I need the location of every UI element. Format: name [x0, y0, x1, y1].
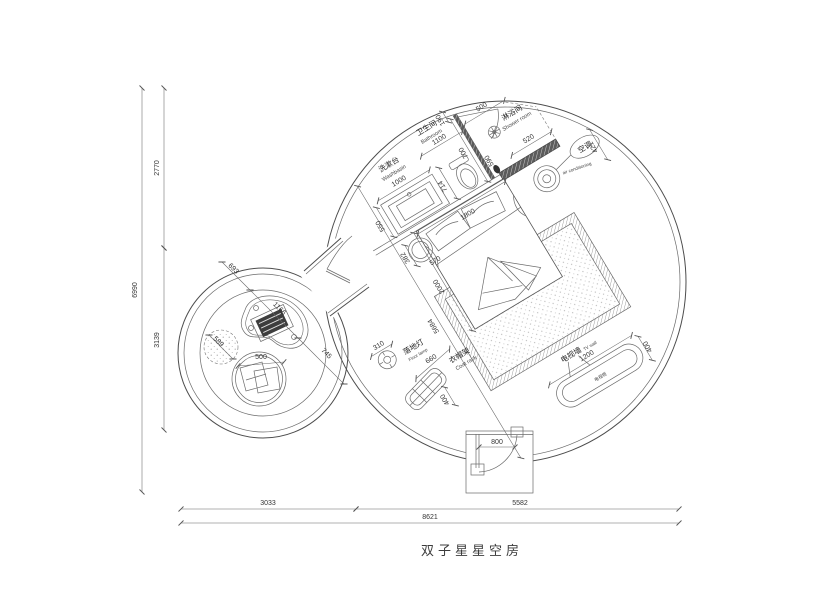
dim-total-width: 8621 — [422, 514, 438, 521]
dim-table-to-door: 745 — [319, 347, 332, 360]
entry-vestibule: 800 — [466, 427, 533, 493]
dim-bed-length: 2000 — [432, 278, 446, 295]
tv-cabinet-label: 电视柜 — [593, 370, 609, 383]
dim-bench-length: 520 — [522, 133, 536, 145]
floor-lamp — [375, 347, 400, 372]
dim-tv-depth: 400 — [642, 340, 654, 354]
dim-entry-door-width: 800 — [491, 439, 503, 446]
dim-toilet-offset: 714 — [437, 179, 449, 193]
dim-left-width: 3033 — [260, 500, 276, 507]
floor-drain-icon — [486, 124, 502, 140]
dim-rack-depth: 400 — [439, 393, 451, 407]
floor-plan-sheet: 6990 2770 3139 3033 5582 8621 — [0, 0, 837, 592]
coat-rack — [403, 366, 449, 413]
dim-wall-to-table: 693 — [226, 262, 239, 275]
dim-counter-depth: 550 — [375, 219, 387, 233]
floor-plan-drawing: 6990 2770 3139 3033 5582 8621 — [0, 0, 837, 592]
dim-upper-height: 2770 — [154, 160, 161, 176]
shower-wall-segment — [499, 139, 560, 180]
dim-stool-offset: 382 — [400, 251, 412, 265]
dim-lamp-diameter: 310 — [372, 340, 386, 352]
corridor — [300, 236, 374, 319]
tv-console: 电视柜 — [551, 339, 648, 412]
drawing-title: 双子星星空房 — [421, 543, 523, 558]
dim-right-width: 5582 — [512, 500, 528, 507]
dim-chair: 500 — [255, 354, 267, 361]
dim-room-diagonal: 5684 — [427, 317, 441, 334]
dim-lower-height: 3139 — [154, 332, 161, 348]
cushion — [240, 362, 268, 391]
dim-total-height: 6990 — [132, 282, 139, 298]
dim-rack-length: 660 — [425, 353, 439, 365]
ac-label-en: air conditioning — [562, 161, 593, 176]
toilet — [448, 154, 482, 193]
